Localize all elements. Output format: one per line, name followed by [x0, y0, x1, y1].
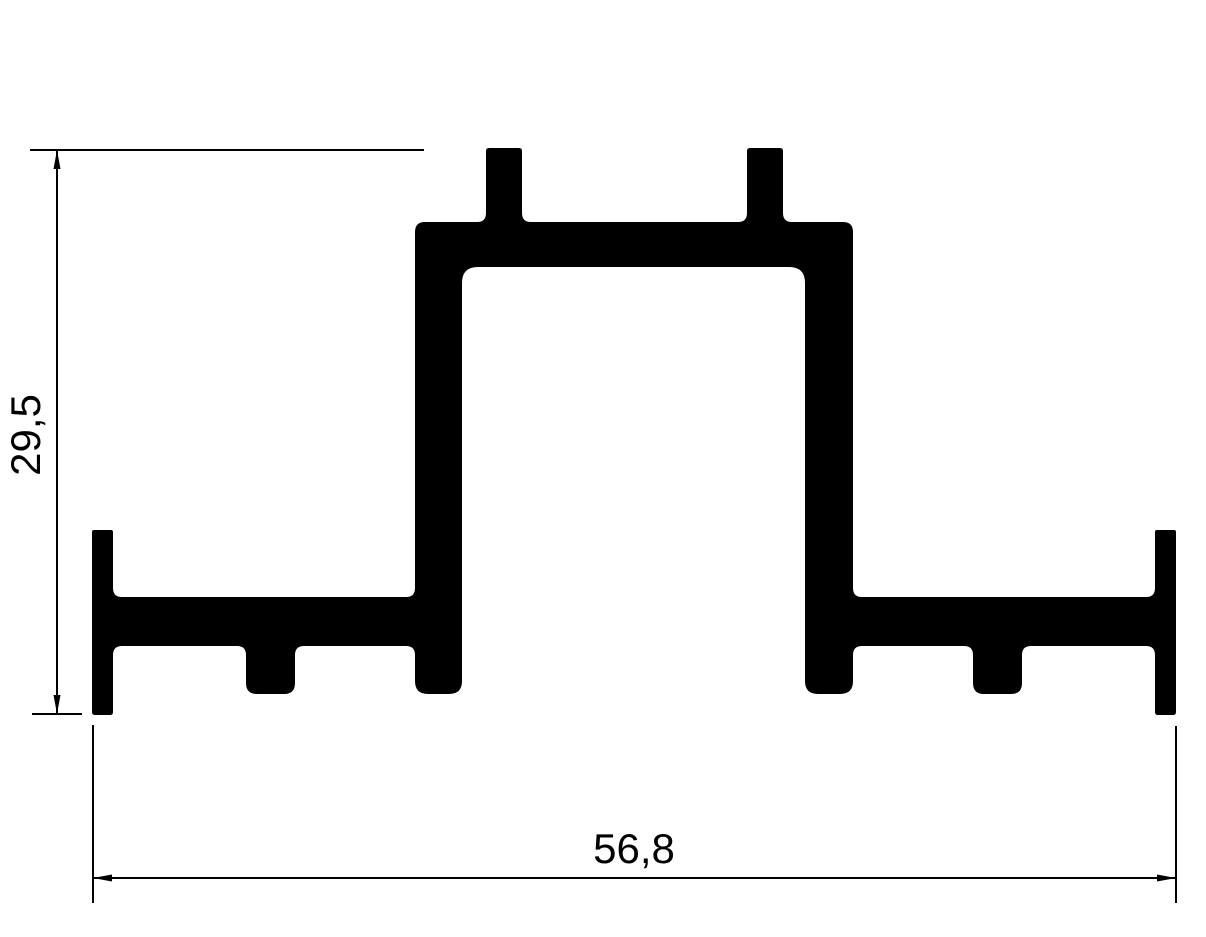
- technical-drawing-canvas: 29,5 56,8: [0, 0, 1206, 937]
- width-arrow-right-icon: [1157, 875, 1176, 882]
- width-arrow-left-icon: [93, 875, 112, 882]
- profile-cross-section-shape: [92, 148, 1176, 715]
- height-arrow-down-icon: [54, 695, 61, 714]
- profile-drawing: 29,5 56,8: [0, 0, 1206, 937]
- height-arrow-up-icon: [54, 150, 61, 169]
- width-dimension: 56,8: [93, 725, 1176, 903]
- width-dimension-label: 56,8: [593, 825, 675, 872]
- height-dimension-label: 29,5: [2, 394, 49, 476]
